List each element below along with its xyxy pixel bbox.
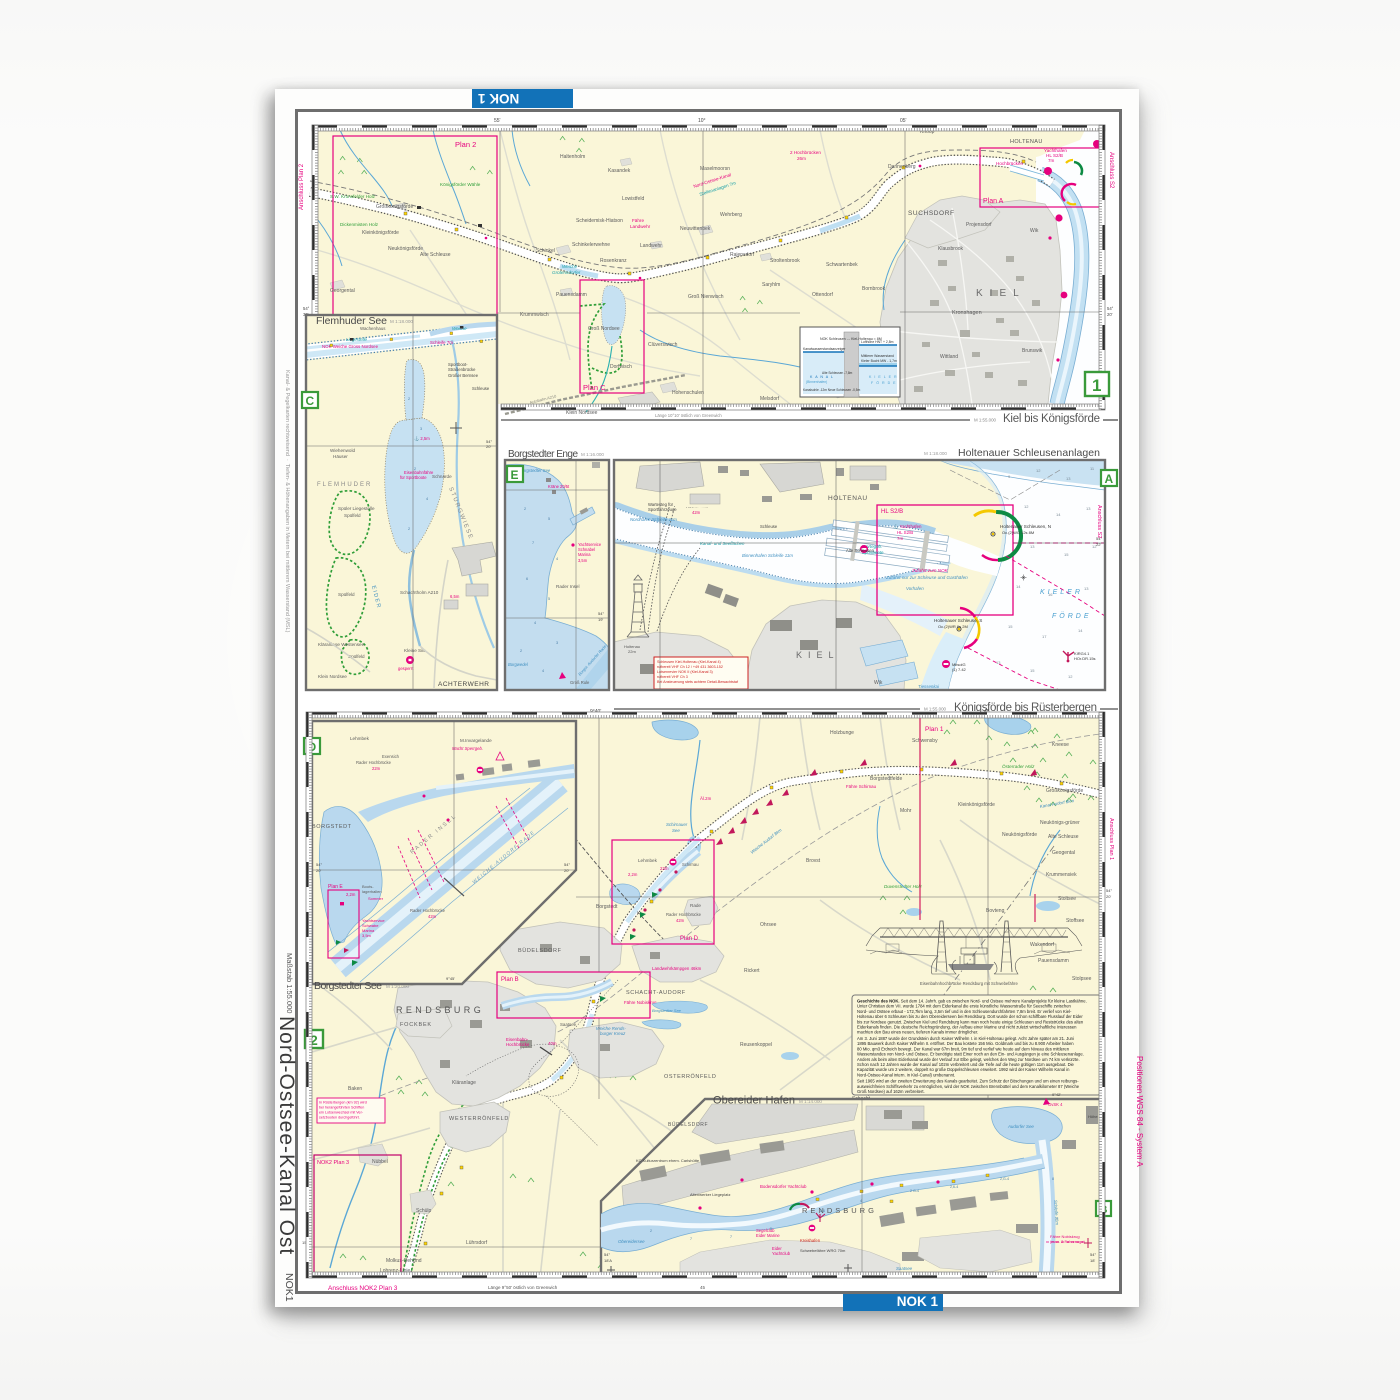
- svg-text:Geogental: Geogental: [1052, 850, 1075, 856]
- svg-text:Schwartenbek: Schwartenbek: [826, 262, 858, 268]
- svg-text:Zufahrt nur zur Schleuse und G: Zufahrt nur zur Schleuse und Gasthäfen: [885, 575, 968, 580]
- svg-text:Alte Schleuse: Alte Schleuse: [420, 252, 451, 258]
- svg-text:Holtenauer Schleuse, S: Holtenauer Schleuse, S: [934, 618, 982, 623]
- svg-text:Brovst: Brovst: [806, 858, 821, 864]
- svg-text:19': 19': [598, 617, 603, 622]
- svg-text:KIELER: KIELER: [1040, 589, 1083, 596]
- svg-text:Großer Bernsee: Großer Bernsee: [448, 373, 479, 378]
- svg-text:Kneese: Kneese: [1052, 742, 1069, 748]
- svg-text:13: 13: [1030, 544, 1035, 549]
- svg-text:Anschluss Plan 1: Anschluss Plan 1: [1108, 818, 1114, 860]
- svg-text:42m: 42m: [692, 510, 701, 515]
- svg-text:3,5m: 3,5m: [362, 933, 372, 938]
- svg-text:ACHTERWEHR: ACHTERWEHR: [438, 681, 489, 688]
- svg-text:Holtenauer Schleusenanlagen: Holtenauer Schleusenanlagen: [958, 447, 1100, 459]
- svg-text:Großkönigsförde: Großkönigsförde: [1046, 788, 1083, 794]
- svg-text:15: 15: [1064, 552, 1069, 557]
- svg-text:Fähre Schirnau: Fähre Schirnau: [846, 784, 877, 789]
- svg-text:Plan E: Plan E: [328, 884, 343, 890]
- svg-text:⚓ Yachthafen: ⚓ Yachthafen: [893, 524, 922, 529]
- svg-text:Kleinkönigsförde: Kleinkönigsförde: [362, 230, 399, 236]
- svg-text:Ottendorf: Ottendorf: [812, 292, 833, 298]
- svg-text:Hohenschulen: Hohenschulen: [672, 390, 704, 396]
- svg-text:Stoffsee: Stoffsee: [1066, 918, 1084, 924]
- svg-text:Mohr: Mohr: [900, 808, 912, 814]
- svg-text:NOK2 Plan 3: NOK2 Plan 3: [317, 1160, 349, 1166]
- svg-text:20': 20': [1106, 894, 1111, 899]
- svg-text:Marina: Marina: [578, 552, 591, 557]
- svg-text:Bornbrook: Bornbrook: [862, 286, 886, 292]
- svg-text:54°: 54°: [598, 611, 604, 616]
- svg-text:Plan 2: Plan 2: [455, 140, 476, 149]
- svg-text:Audorfer See: Audorfer See: [1007, 1124, 1034, 1129]
- svg-text:Rader Hochbrücke: Rader Hochbrücke: [666, 912, 702, 917]
- svg-text:Exensich: Exensich: [382, 754, 400, 759]
- svg-text:Saatsee: Saatsee: [896, 1266, 913, 1271]
- svg-text:Länge 9°50' östlich von Greenw: Länge 9°50' östlich von Greenwich: [488, 1285, 558, 1290]
- svg-text:Scheidemisk-Hiatson: Scheidemisk-Hiatson: [576, 218, 623, 224]
- svg-text:2,6-4: 2,6-4: [950, 1185, 958, 1189]
- svg-text:Eisenbahnhochbrücke Rendsburg: Eisenbahnhochbrücke Rendsburg mit Schweb…: [920, 981, 1018, 986]
- svg-text:54°: 54°: [303, 306, 310, 311]
- svg-text:Melsdorf: Melsdorf: [760, 396, 780, 402]
- svg-text:13: 13: [1066, 476, 1071, 481]
- svg-text:BORGSTEDT: BORGSTEDT: [312, 824, 352, 830]
- svg-text:Holzbunge: Holzbunge: [830, 730, 854, 736]
- svg-text:Schinkel: Schinkel: [536, 248, 555, 254]
- svg-text:Macht Sperrgeb.: Macht Sperrgeb.: [452, 746, 483, 751]
- svg-text:Schnärde: Schnärde: [432, 474, 452, 479]
- svg-text:Schleuse: Schleuse: [472, 386, 490, 391]
- svg-text:Molkus-Gehrmd: Molkus-Gehrmd: [386, 1258, 422, 1264]
- svg-text:Landwehrkämpgen 46km: Landwehrkämpgen 46km: [652, 966, 702, 971]
- svg-text:14: 14: [1078, 628, 1083, 633]
- svg-text:Oc.(2)WG 12s 8M: Oc.(2)WG 12s 8M: [1002, 530, 1034, 535]
- svg-text:Rade: Rade: [690, 903, 701, 908]
- svg-text:KIEL: KIEL: [796, 650, 840, 660]
- svg-text:Klausbrook: Klausbrook: [938, 246, 964, 252]
- svg-text:Bodensdorfer Yachtclub: Bodensdorfer Yachtclub: [760, 1184, 807, 1189]
- svg-text:F Ö R D E: F Ö R D E: [871, 381, 897, 385]
- svg-text:Grotensdorfer: Grotensdorfer: [552, 270, 581, 275]
- svg-text:Projensdorf: Projensdorf: [966, 222, 992, 228]
- svg-text:HOLTENAU: HOLTENAU: [828, 495, 868, 502]
- svg-text:Schinkelerwehne: Schinkelerwehne: [572, 242, 610, 248]
- svg-text:FOCKBEK: FOCKBEK: [400, 1022, 432, 1028]
- svg-text:7m: 7m: [1048, 158, 1055, 163]
- svg-text:KIEL: KIEL: [976, 288, 1026, 299]
- svg-text:Rosenkranz: Rosenkranz: [600, 258, 627, 264]
- svg-text:Anschluss NOK2 Plan 3: Anschluss NOK2 Plan 3: [328, 1285, 398, 1292]
- svg-text:Rader Hochbrücke: Rader Hochbrücke: [410, 908, 446, 913]
- svg-text:Reusenkoppel: Reusenkoppel: [740, 1042, 772, 1048]
- svg-text:(max. 2 Fahrzeuge): (max. 2 Fahrzeuge): [1050, 1239, 1086, 1244]
- svg-text:OSTERRÖNFELD: OSTERRÖNFELD: [664, 1073, 716, 1080]
- svg-text:2: 2: [414, 467, 416, 471]
- svg-text:Äl.2m: Äl.2m: [700, 796, 712, 801]
- svg-text:Kläranlage: Kläranlage: [452, 1080, 476, 1086]
- svg-text:Eider Marine: Eider Marine: [756, 1233, 780, 1238]
- svg-text:3: 3: [420, 427, 422, 431]
- svg-text:Groß Nienwisch: Groß Nienwisch: [688, 294, 724, 300]
- svg-text:Clüverswisch: Clüverswisch: [648, 342, 678, 348]
- svg-text:5: 5: [548, 597, 550, 601]
- svg-text:54°: 54°: [564, 862, 570, 867]
- svg-text:rufbereit VHF Ch 3: rufbereit VHF Ch 3: [657, 675, 688, 679]
- svg-text:Schwebefähre WRG 70m: Schwebefähre WRG 70m: [800, 1248, 846, 1253]
- svg-text:Stroltenbrook: Stroltenbrook: [770, 258, 800, 264]
- svg-text:Anschluss S2: Anschluss S2: [1108, 152, 1114, 189]
- svg-text:20': 20': [1107, 312, 1113, 317]
- svg-text:A: A: [1105, 472, 1114, 486]
- svg-text:2 Hochbrücken: 2 Hochbrücken: [790, 150, 821, 155]
- svg-text:Oc.(2)WR 9s 2M: Oc.(2)WR 9s 2M: [938, 624, 968, 629]
- svg-text:54°: 54°: [1090, 1252, 1096, 1257]
- svg-text:BÜDELSDORF: BÜDELSDORF: [668, 1121, 708, 1128]
- svg-text:7: 7: [532, 541, 534, 545]
- svg-text:RENDSBURG: RENDSBURG: [396, 1005, 484, 1015]
- svg-text:HL S2/B: HL S2/B: [897, 530, 913, 535]
- svg-text:10°: 10°: [698, 118, 706, 124]
- svg-text:Königsförder Wähle: Königsförder Wähle: [440, 182, 481, 187]
- svg-text:Saatsee: Saatsee: [560, 1022, 577, 1027]
- svg-text:M 1:16.000: M 1:16.000: [581, 452, 604, 457]
- svg-text:4: 4: [556, 557, 558, 561]
- svg-text:Dorfwisch: Dorfwisch: [610, 364, 632, 370]
- svg-text:Kieler Bucht MW - 1,7m: Kieler Bucht MW - 1,7m: [861, 359, 897, 363]
- svg-text:rufbereit VHF Ch 12 / +49 431: rufbereit VHF Ch 12 / +49 431 3603-152: [657, 665, 723, 669]
- svg-text:Weiche: Weiche: [562, 264, 578, 269]
- svg-text:2: 2: [408, 527, 410, 531]
- svg-text:SUCHSDORF: SUCHSDORF: [908, 210, 955, 217]
- svg-text:4: 4: [426, 497, 428, 501]
- svg-text:7m: 7m: [897, 536, 903, 541]
- svg-text:Kronshagen: Kronshagen: [952, 310, 982, 316]
- svg-text:Kanalwasserstandsanzeiger: Kanalwasserstandsanzeiger: [803, 347, 846, 351]
- svg-text:12: 12: [1068, 674, 1073, 679]
- svg-text:15: 15: [1008, 624, 1013, 629]
- svg-text:20': 20': [316, 868, 321, 873]
- svg-text:K A N A L: K A N A L: [810, 375, 834, 379]
- svg-text:Baken: Baken: [348, 1086, 362, 1092]
- svg-text:Österrader Holz: Österrader Holz: [1002, 763, 1035, 769]
- svg-text:Anschluss Plan 2: Anschluss Plan 2: [299, 163, 305, 210]
- svg-text:Zufahrt zum NOK: Zufahrt zum NOK: [911, 568, 949, 573]
- svg-text:M.Invargelande: M.Invargelande: [460, 738, 492, 743]
- svg-text:gesperrt: gesperrt: [398, 666, 414, 671]
- svg-text:Schleife 7m: Schleife 7m: [430, 340, 453, 345]
- svg-text:2: 2: [520, 649, 522, 653]
- svg-text:Altenwerker Liegeplatz: Altenwerker Liegeplatz: [690, 1192, 730, 1197]
- svg-text:Groß Nordsee) auf 162m verbrei: Groß Nordsee) auf 162m verbreitert.: [857, 1089, 925, 1094]
- svg-text:bei herangeführten Schiffen: bei herangeführten Schiffen: [319, 1106, 364, 1110]
- svg-text:9: 9: [1056, 1217, 1058, 1221]
- svg-text:Maselmoorsn: Maselmoorsn: [700, 166, 730, 172]
- svg-text:Lehmbek: Lehmbek: [638, 858, 658, 863]
- svg-text:Kiel bis Königsförde: Kiel bis Königsförde: [1003, 413, 1100, 425]
- svg-text:WESTERRÖNFELD: WESTERRÖNFELD: [449, 1115, 509, 1122]
- svg-text:Schirnauer: Schirnauer: [666, 822, 688, 827]
- svg-text:Rajensdorf: Rajensdorf: [730, 252, 755, 258]
- svg-text:2,G-4: 2,G-4: [1000, 1177, 1009, 1181]
- svg-text:54°: 54°: [1106, 888, 1112, 893]
- svg-text:Kräne 20/5t: Kräne 20/5t: [548, 484, 570, 489]
- svg-text:Schleusen Kiel-Holtenau (Kiel-: Schleusen Kiel-Holtenau (Kiel-Kanal 4): [657, 660, 721, 664]
- svg-text:7: 7: [730, 1235, 732, 1239]
- svg-text:Neukönigsförde: Neukönigsförde: [388, 246, 423, 252]
- svg-text:Wittland: Wittland: [940, 354, 958, 360]
- svg-text:Lufthöhe HNT + 2,8m: Lufthöhe HNT + 2,8m: [861, 340, 894, 344]
- svg-text:burger Kreuz: burger Kreuz: [600, 1031, 626, 1036]
- svg-text:See: See: [672, 828, 680, 833]
- svg-text:Schülp: Schülp: [416, 1208, 432, 1214]
- svg-text:In Rüsterbergen (km 92) wird: In Rüsterbergen (km 92) wird: [319, 1101, 367, 1105]
- svg-text:Schirnau: Schirnau: [682, 862, 699, 867]
- svg-text:26m: 26m: [797, 156, 806, 161]
- svg-text:M 1:18.000: M 1:18.000: [390, 319, 413, 324]
- svg-text:Dannenberg: Dannenberg: [888, 164, 916, 170]
- svg-text:Anschluss S2: Anschluss S2: [1096, 505, 1102, 538]
- svg-text:18': 18': [1090, 1258, 1095, 1263]
- svg-text:Landwehr: Landwehr: [640, 243, 662, 249]
- svg-text:Neukönigsförde: Neukönigsförde: [1002, 832, 1037, 838]
- svg-text:Länge 10°10' östlich von Green: Länge 10°10' östlich von Greenwich: [655, 413, 722, 418]
- svg-text:14: 14: [1056, 512, 1061, 517]
- svg-text:Tiessenkai: Tiessenkai: [918, 684, 940, 689]
- svg-text:15: 15: [1030, 668, 1035, 673]
- svg-text:1: 1: [1092, 376, 1101, 395]
- svg-text:Nübbel: Nübbel: [372, 1159, 388, 1165]
- svg-text:22m: 22m: [660, 866, 669, 871]
- svg-text:FÖRDE: FÖRDE: [1052, 612, 1092, 620]
- svg-text:2: 2: [408, 397, 410, 401]
- svg-text:(Binnenhafen): (Binnenhafen): [806, 380, 827, 384]
- svg-text:Straßenbrücke: Straßenbrücke: [448, 367, 476, 372]
- svg-text:12: 12: [1036, 468, 1041, 473]
- svg-text:Holtenauer Schleusen, N: Holtenauer Schleusen, N: [1000, 524, 1051, 529]
- svg-text:HOr.DR.15s: HOr.DR.15s: [1074, 656, 1096, 661]
- svg-text:2: 2: [524, 507, 526, 511]
- svg-text:Landwehr: Landwehr: [630, 224, 651, 229]
- svg-text:17: 17: [1042, 634, 1047, 639]
- svg-text:5: 5: [548, 517, 550, 521]
- svg-text:54°: 54°: [604, 1252, 610, 1257]
- svg-text:M 1:18.000: M 1:18.000: [924, 451, 947, 456]
- svg-text:⚓ 2,5m: ⚓ 2,5m: [414, 436, 430, 441]
- svg-text:Krummwisch: Krummwisch: [520, 312, 549, 318]
- svg-text:54°: 54°: [1107, 306, 1114, 311]
- svg-text:Lowistfeld: Lowistfeld: [622, 196, 644, 202]
- svg-text:20': 20': [486, 444, 491, 449]
- svg-text:C: C: [306, 394, 315, 408]
- svg-text:Ohrsee: Ohrsee: [760, 922, 777, 928]
- svg-text:Nordhafen Schleife 11m: Nordhafen Schleife 11m: [630, 517, 677, 522]
- svg-text:Spüler Liegestelle: Spüler Liegestelle: [338, 506, 375, 511]
- svg-text:Hochbrücken: Hochbrücken: [996, 161, 1024, 166]
- svg-text:6,5m: 6,5m: [450, 594, 460, 599]
- svg-text:42m: 42m: [676, 918, 685, 923]
- svg-text:K I E L E R: K I E L E R: [869, 375, 898, 379]
- svg-text:Borgstedter Enge: Borgstedter Enge: [508, 449, 578, 460]
- svg-text:Häuser: Häuser: [333, 454, 348, 459]
- svg-text:setzbooten durchgeführt.: setzbooten durchgeführt.: [319, 1116, 360, 1120]
- svg-text:Wik: Wik: [874, 680, 883, 686]
- svg-text:Lotsenrevier NOK II (Kiel-Kan: Lotsenrevier NOK II (Kiel-Kanal 3): [657, 670, 713, 674]
- svg-text:Schwensby: Schwensby: [912, 738, 938, 744]
- svg-text:54°: 54°: [316, 862, 322, 867]
- svg-text:2: 2: [650, 1229, 652, 1233]
- svg-text:Alte Schleusen -7,8m: Alte Schleusen -7,8m: [822, 371, 853, 375]
- svg-text:Binnenhafen Schleife 11m: Binnenhafen Schleife 11m: [742, 553, 793, 558]
- svg-text:4: 4: [542, 669, 544, 673]
- svg-text:KC Kulturzentrum ehem. Carlshü: KC Kulturzentrum ehem. Carlshütte: [636, 1158, 700, 1163]
- svg-text:22m: 22m: [372, 766, 381, 771]
- svg-text:Neukönigs-grüner: Neukönigs-grüner: [1040, 820, 1080, 826]
- svg-text:Pauensdamm: Pauensdamm: [1038, 958, 1069, 964]
- svg-text:Klein Nordsee: Klein Nordsee: [566, 410, 598, 416]
- svg-text:Yachtclub: Yachtclub: [772, 1251, 791, 1256]
- svg-text:Bovteng: Bovteng: [986, 908, 1005, 914]
- svg-text:Schachtholm A210: Schachtholm A210: [400, 590, 439, 595]
- svg-text:3: 3: [556, 641, 558, 645]
- svg-text:machten den Bau eines neuen, t: machten den Bau eines neuen, tieferen Ka…: [857, 1030, 978, 1035]
- svg-text:14: 14: [1016, 584, 1021, 589]
- svg-text:55': 55': [494, 118, 501, 124]
- svg-text:5: 5: [770, 1227, 772, 1231]
- svg-text:4: 4: [534, 621, 536, 625]
- svg-text:Borgstedt: Borgstedt: [596, 904, 618, 910]
- svg-text:18'A: 18'A: [604, 1258, 612, 1263]
- svg-text:40m: 40m: [548, 1041, 557, 1046]
- svg-text:Wik: Wik: [1030, 228, 1039, 234]
- svg-text:Plan D: Plan D: [680, 936, 699, 942]
- svg-text:Saryhlm: Saryhlm: [762, 282, 780, 288]
- svg-text:HL S2/B: HL S2/B: [881, 509, 903, 515]
- svg-text:Weiche: Weiche: [452, 326, 467, 331]
- svg-text:Kasandek: Kasandek: [608, 168, 631, 174]
- svg-text:8: 8: [1052, 1177, 1054, 1181]
- svg-text:Spülfeld: Spülfeld: [338, 592, 355, 597]
- svg-text:FLEMHUDER: FLEMHUDER: [317, 482, 372, 488]
- svg-text:3,5m: 3,5m: [578, 558, 588, 563]
- svg-text:Borgstedter See: Borgstedter See: [652, 1008, 682, 1013]
- svg-text:Sommer: Sommer: [368, 896, 384, 901]
- svg-text:Krummensiek: Krummensiek: [1046, 872, 1077, 878]
- svg-text:Lührsdorf: Lührsdorf: [466, 1240, 488, 1246]
- svg-text:Borgwedel: Borgwedel: [508, 662, 529, 667]
- svg-text:Schleuse: Schleuse: [760, 524, 778, 529]
- svg-text:Groß Rule: Groß Rule: [570, 680, 590, 685]
- svg-text:Groß Nordsee: Groß Nordsee: [588, 326, 620, 332]
- svg-text:lagerhallen: lagerhallen: [362, 889, 382, 894]
- svg-text:9°45': 9°45': [446, 976, 455, 981]
- svg-text:Plan A: Plan A: [983, 198, 1004, 205]
- svg-text:Plan 1: Plan 1: [925, 726, 944, 733]
- svg-text:Wehrberg: Wehrberg: [720, 212, 742, 218]
- svg-text:M 1:20.000: M 1:20.000: [386, 984, 409, 989]
- svg-text:2 G-4: 2 G-4: [910, 1189, 919, 1193]
- svg-text:22': 22': [1096, 542, 1101, 547]
- svg-text:SCHACHT-AUDORF: SCHACHT-AUDORF: [626, 990, 686, 996]
- svg-text:Rader Hochbrücke: Rader Hochbrücke: [356, 760, 392, 765]
- svg-text:Stolpsee: Stolpsee: [1072, 976, 1092, 982]
- svg-text:2,2m: 2,2m: [346, 892, 356, 897]
- svg-text:Neuwittenbek: Neuwittenbek: [680, 226, 711, 232]
- svg-text:M 1:55.000: M 1:55.000: [924, 707, 947, 712]
- svg-text:E: E: [511, 468, 519, 482]
- svg-text:13: 13: [996, 660, 1001, 665]
- svg-text:22m: 22m: [628, 649, 636, 654]
- svg-text:Lehmbek: Lehmbek: [350, 736, 370, 741]
- svg-text:Wachenhaus: Wachenhaus: [360, 326, 386, 331]
- svg-text:RENDSBURG: RENDSBURG: [802, 1206, 877, 1215]
- svg-text:für Sportboote: für Sportboote: [400, 475, 427, 480]
- svg-text:Kleinkönigsförde: Kleinkönigsförde: [958, 802, 995, 808]
- svg-text:2,2m: 2,2m: [628, 872, 638, 877]
- svg-text:M 1:14.000: M 1:14.000: [799, 1099, 822, 1104]
- svg-text:Sportfahrzeuge: Sportfahrzeuge: [648, 507, 677, 512]
- svg-text:Fähre: Fähre: [632, 218, 644, 223]
- svg-text:Brunswik: Brunswik: [1022, 348, 1043, 354]
- svg-text:2,6: 2,6: [820, 1209, 825, 1213]
- svg-text:Plan B: Plan B: [501, 977, 519, 983]
- svg-text:Kläranlage Westensee: Kläranlage Westensee: [318, 642, 365, 647]
- svg-text:Großkönigsförde: Großkönigsförde: [376, 204, 413, 210]
- svg-text:Kanal- und Seeflächen: Kanal- und Seeflächen: [700, 541, 745, 546]
- svg-text:Plan C: Plan C: [583, 383, 606, 392]
- svg-text:20': 20': [564, 868, 569, 873]
- svg-text:Kreishafen: Kreishafen: [800, 1238, 821, 1243]
- svg-text:13: 13: [1086, 506, 1091, 511]
- svg-text:Dickenmisten Holz: Dickenmisten Holz: [340, 222, 379, 227]
- svg-text:GvSK 4: GvSK 4: [1048, 1102, 1063, 1107]
- svg-text:S.W. Kronsfelder Holz: S.W. Kronsfelder Holz: [330, 194, 376, 199]
- svg-text:12: 12: [1024, 504, 1029, 509]
- svg-text:Liegestelle: Liegestelle: [346, 337, 368, 342]
- svg-text:4: 4: [860, 1199, 862, 1203]
- svg-text:Obereidersee: Obereidersee: [618, 1239, 645, 1244]
- svg-text:Georgental: Georgental: [330, 288, 355, 294]
- svg-text:Spülfeld: Spülfeld: [344, 513, 361, 518]
- svg-text:ein Lotsenwechsel mit Ver-: ein Lotsenwechsel mit Ver-: [319, 1111, 364, 1115]
- svg-text:(1) 7.42: (1) 7.42: [952, 667, 967, 672]
- svg-text:M 1:55.000: M 1:55.000: [974, 418, 997, 423]
- svg-text:05': 05': [900, 118, 907, 124]
- svg-text:Alte Schleusen: Alte Schleusen: [846, 548, 875, 553]
- svg-text:Borgstedter See: Borgstedter See: [314, 980, 382, 992]
- svg-text:Haltenholm: Haltenholm: [560, 154, 585, 160]
- svg-text:BÜDELSDORF: BÜDELSDORF: [518, 947, 562, 954]
- svg-text:Vorhafen: Vorhafen: [906, 586, 924, 591]
- svg-text:Alte Schleuse: Alte Schleuse: [1048, 834, 1079, 840]
- svg-text:Wakendorf: Wakendorf: [1030, 942, 1055, 948]
- svg-text:42m: 42m: [428, 914, 437, 919]
- svg-text:45: 45: [700, 1285, 706, 1290]
- svg-text:9°42': 9°42': [1052, 1092, 1061, 1097]
- svg-text:Borgstedter See: Borgstedter See: [520, 468, 551, 473]
- svg-text:Hochbrücke: Hochbrücke: [506, 1042, 530, 1047]
- svg-text:Mittlerer Wasserstand: Mittlerer Wasserstand: [861, 354, 894, 358]
- svg-text:HOLTENAU: HOLTENAU: [1010, 139, 1043, 145]
- svg-text:Pauensdamm: Pauensdamm: [556, 292, 587, 298]
- svg-text:Klein Nordsee: Klein Nordsee: [318, 674, 347, 679]
- svg-text:13: 13: [1084, 586, 1089, 591]
- svg-text:6: 6: [526, 577, 528, 581]
- svg-text:Kanalsohle -12m Neue Schleu: Kanalsohle -12m Neue Schleusen -0,5m: [803, 388, 861, 392]
- svg-text:Borgstedtfelde: Borgstedtfelde: [870, 776, 902, 782]
- svg-text:Rickert: Rickert: [744, 968, 760, 974]
- svg-text:Bei Ansteuerung stets achtern: Bei Ansteuerung stets achtern Detail-Bew…: [657, 680, 739, 684]
